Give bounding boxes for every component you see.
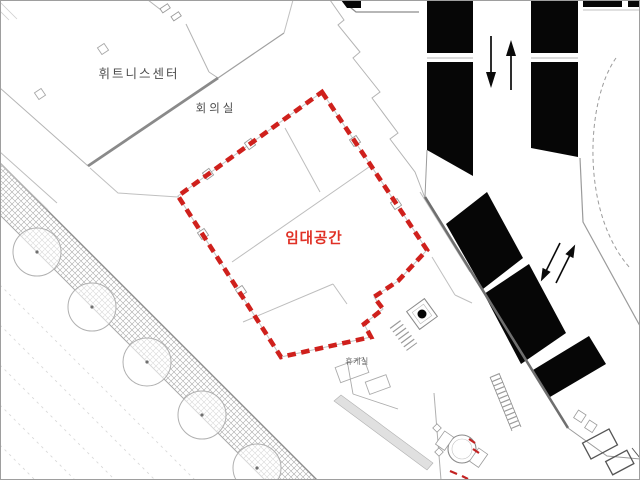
mass-top-bar [583, 0, 622, 7]
mass-top-bar [628, 0, 640, 7]
mass-column1-upper [427, 0, 473, 53]
fitness-center-label: 휘트니스센터 [98, 67, 179, 81]
mass-column2-lower [531, 62, 578, 157]
lounge-label: 휴게실 [345, 356, 369, 366]
mass-column2-upper [531, 0, 578, 53]
rental-space-label: 임대공간 [285, 230, 342, 247]
meeting-room-label: 회의실 [196, 102, 237, 115]
floor-plan-page: 휘트니스센터 회의실 임대공간 휴게실 [0, 0, 640, 480]
floor-plan-svg: 휘트니스센터 회의실 임대공간 휴게실 [0, 0, 640, 480]
